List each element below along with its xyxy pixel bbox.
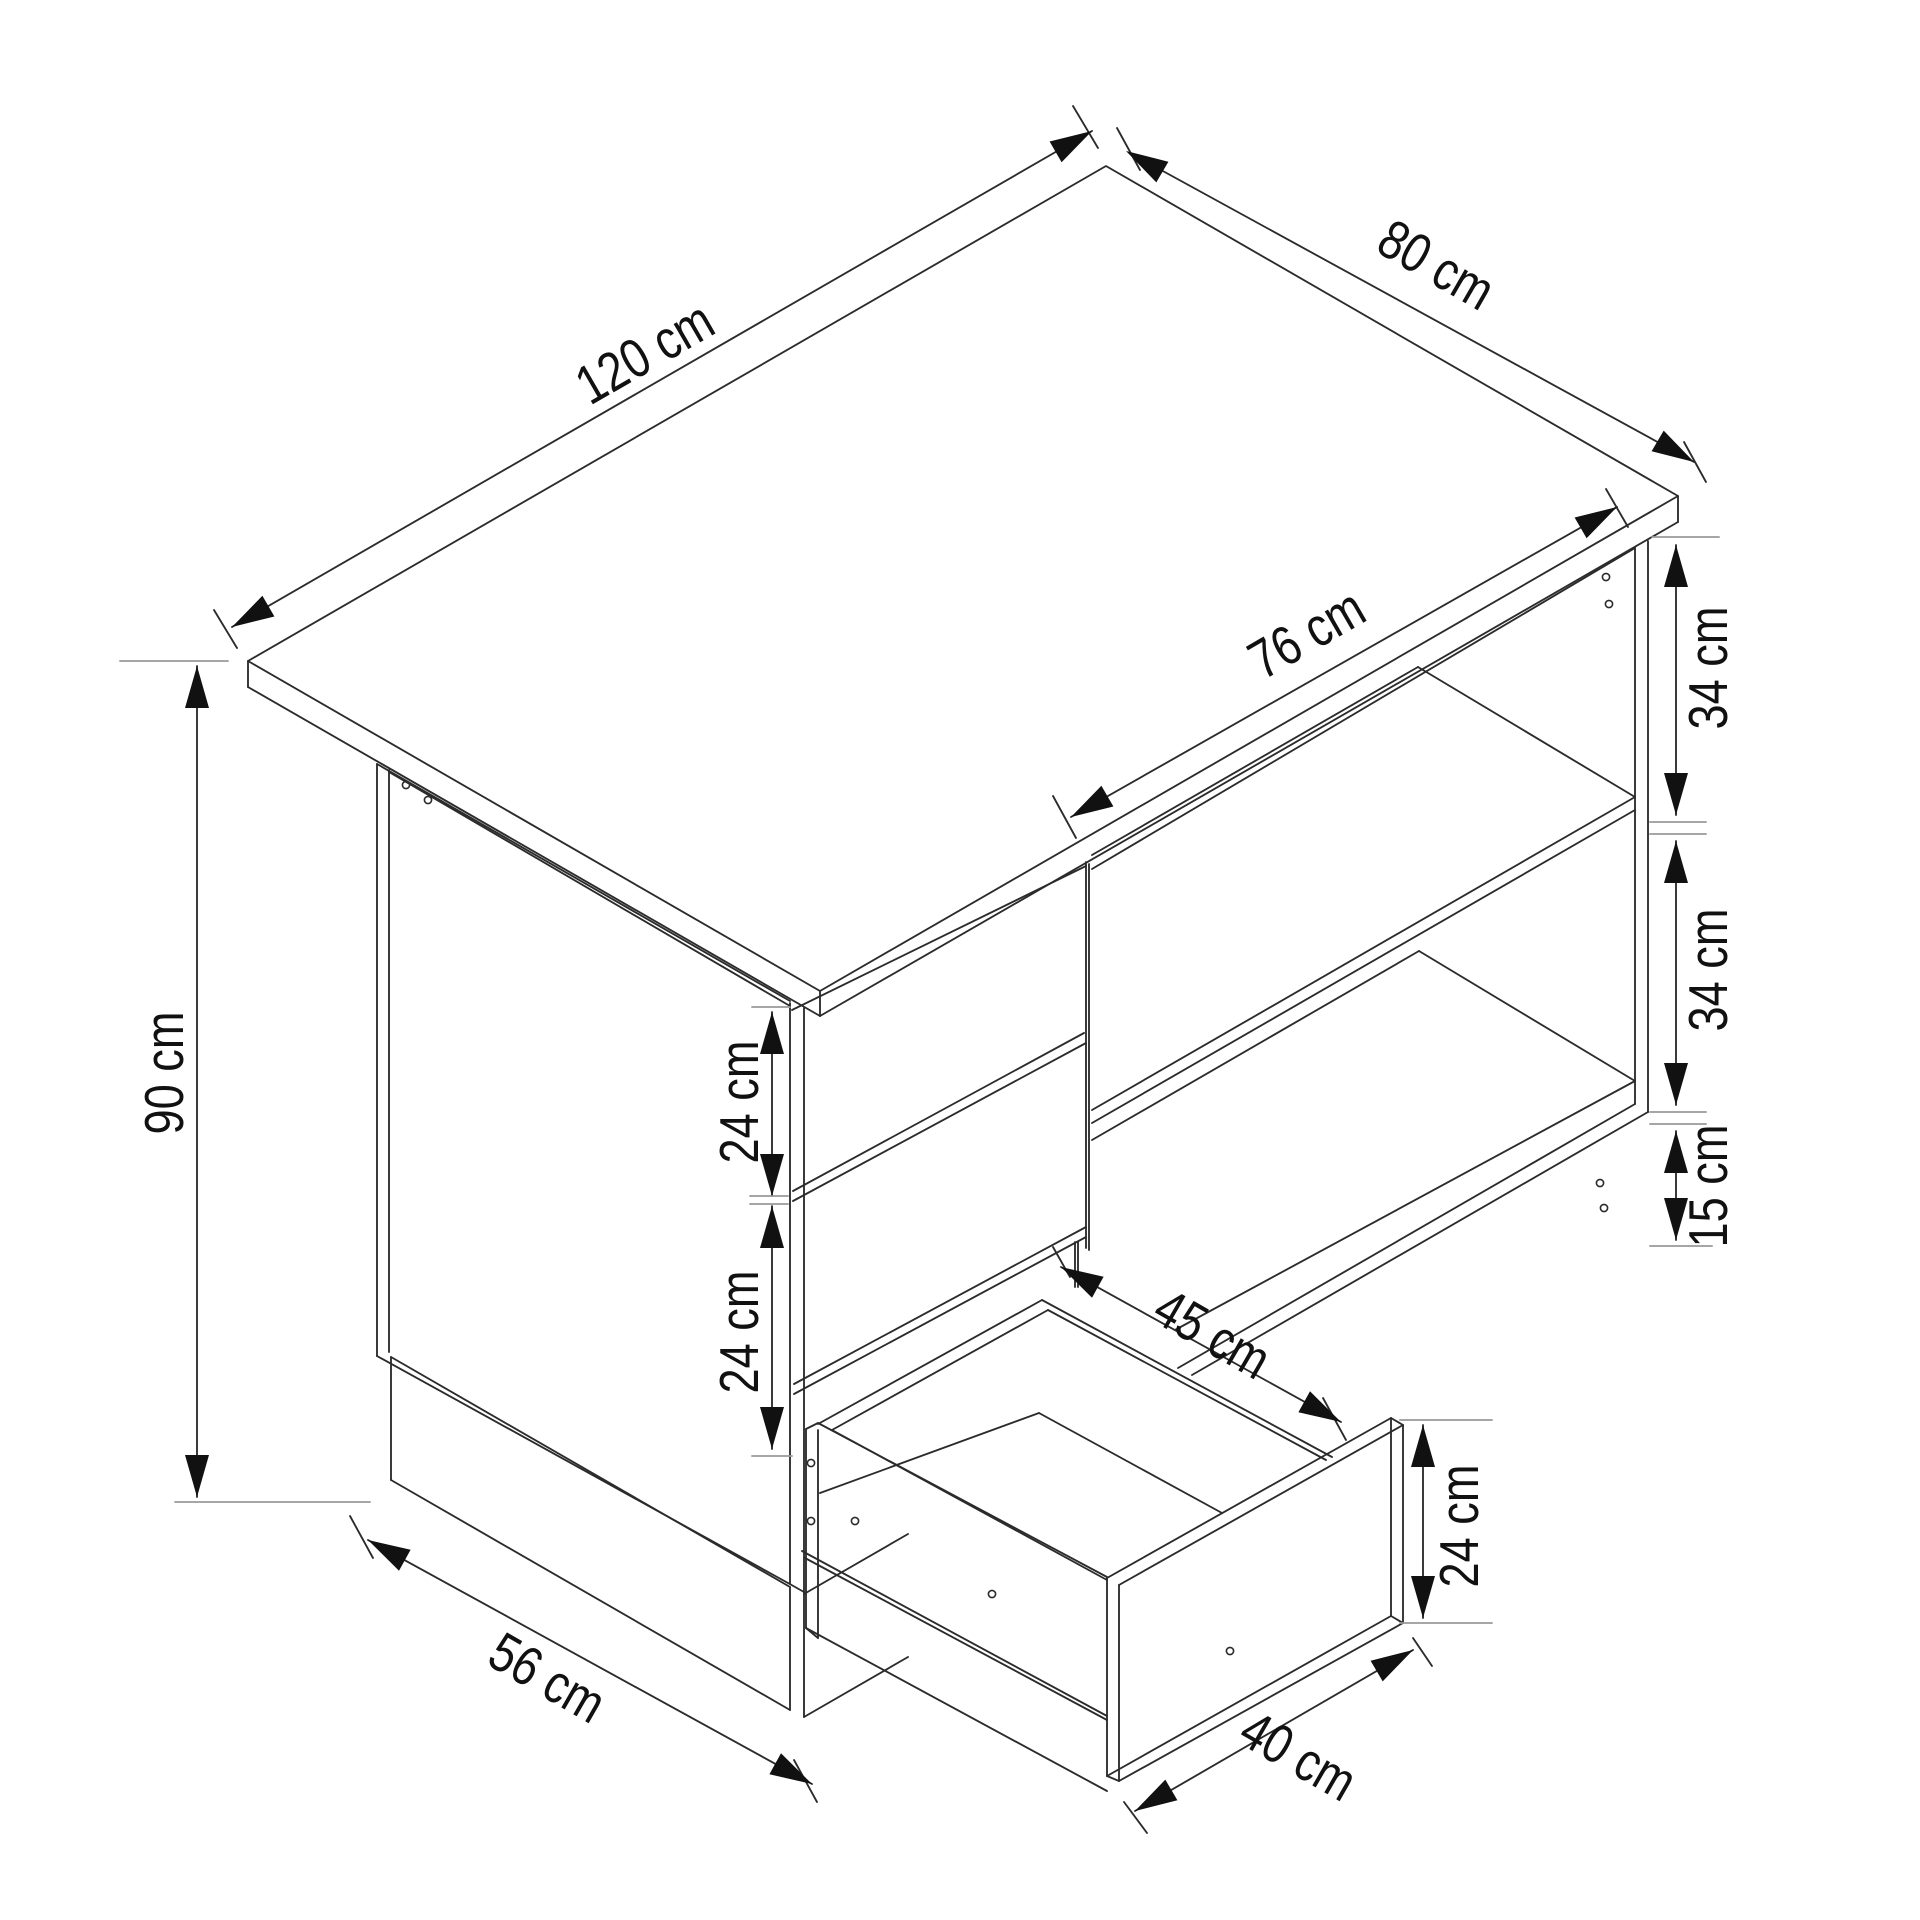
svg-text:34 cm: 34 cm — [1677, 607, 1739, 730]
svg-text:90 cm: 90 cm — [133, 1012, 195, 1135]
svg-text:34 cm: 34 cm — [1677, 909, 1739, 1032]
svg-text:24 cm: 24 cm — [1428, 1465, 1490, 1588]
svg-text:24 cm: 24 cm — [708, 1041, 770, 1164]
svg-text:24 cm: 24 cm — [708, 1271, 770, 1394]
svg-text:15 cm: 15 cm — [1677, 1125, 1739, 1248]
